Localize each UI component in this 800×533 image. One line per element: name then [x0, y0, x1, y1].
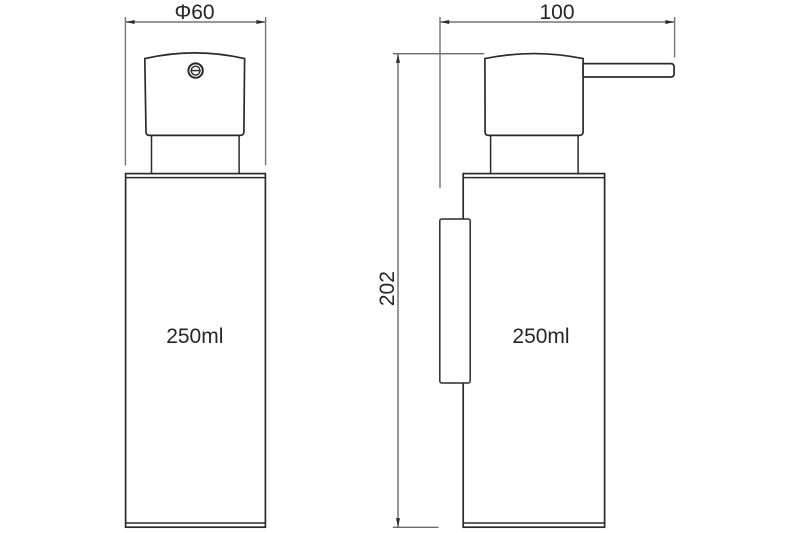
- svg-text:250ml: 250ml: [166, 325, 223, 348]
- svg-text:250ml: 250ml: [512, 325, 569, 348]
- svg-text:100: 100: [539, 1, 574, 24]
- svg-text:Φ60: Φ60: [174, 1, 214, 24]
- svg-text:202: 202: [376, 271, 399, 306]
